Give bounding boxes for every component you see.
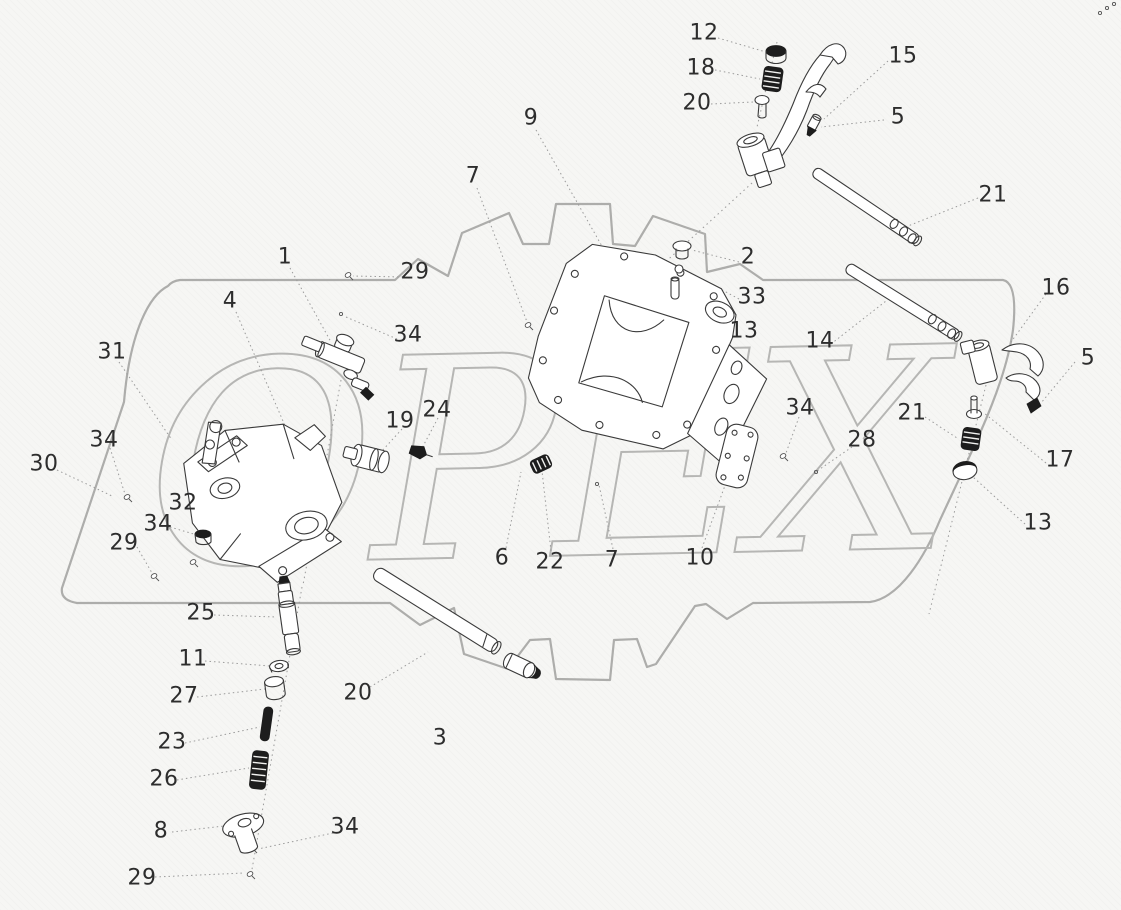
screw-5-right-part (1027, 398, 1041, 413)
nut-11-part (269, 659, 289, 673)
leader-line-27 (197, 689, 265, 697)
screw-5-top-part (804, 113, 823, 138)
tiny-screw-mark (123, 494, 132, 502)
tiny-dot-mark (1105, 6, 1108, 9)
leader-line-30 (57, 470, 112, 496)
leader-line-29 (155, 873, 244, 877)
callout-label-7: 7 (605, 548, 620, 573)
callout-label-16: 16 (1042, 276, 1071, 301)
cap-12-part (766, 46, 786, 57)
callout-label-30: 30 (30, 452, 59, 477)
cap-8-part (220, 809, 271, 858)
spring-18-part (761, 66, 783, 92)
callout-label-10: 10 (686, 546, 715, 571)
callout-label-15: 15 (889, 44, 918, 69)
diagram-canvas: OPEX (0, 0, 1121, 910)
callout-label-22: 22 (536, 550, 565, 575)
callout-label-7: 7 (466, 164, 481, 189)
callout-label-27: 27 (170, 684, 199, 709)
leader-line-12 (718, 38, 766, 52)
callout-label-29: 29 (401, 260, 430, 285)
callout-label-5: 5 (1081, 346, 1096, 371)
leader-line-5 (821, 120, 884, 127)
leader-line-8 (172, 826, 224, 832)
leader-line-18 (715, 70, 760, 79)
callout-label-29: 29 (128, 866, 157, 891)
callout-label-11: 11 (179, 647, 208, 672)
part-drawing-upper-fork-group (735, 44, 845, 190)
leader-line-16 (1011, 294, 1046, 342)
leader-line-34 (110, 448, 125, 494)
tiny-screw-mark (246, 871, 255, 879)
callout-label-23: 23 (158, 730, 187, 755)
leader-line-2 (692, 250, 739, 262)
bolt-17-part (967, 396, 982, 419)
callout-label-34: 34 (394, 323, 423, 348)
leader-line-15 (824, 61, 888, 119)
tiny-screw-mark (344, 272, 353, 280)
callout-label-1: 1 (278, 245, 293, 270)
callout-label-21: 21 (898, 401, 927, 426)
callout-label-24: 24 (423, 398, 452, 423)
fork-16-group (952, 336, 1044, 481)
leader-line-13 (973, 477, 1025, 524)
callout-label-21: 21 (979, 183, 1008, 208)
bushing-27-part (264, 675, 286, 700)
leader-line-23 (185, 727, 260, 743)
callout-label-17: 17 (1046, 448, 1075, 473)
leader-line-34 (258, 833, 333, 849)
callout-label-33: 33 (738, 285, 767, 310)
callout-label-34: 34 (144, 512, 173, 537)
fork-16-jaw (1002, 344, 1043, 376)
callout-label-34: 34 (331, 815, 360, 840)
plug-2-part (673, 241, 691, 259)
tiny-dot-mark (1098, 11, 1101, 14)
spring-21-right-part (961, 427, 982, 451)
leader-line-29 (353, 276, 403, 277)
callout-label-20: 20 (683, 91, 712, 116)
leader-line-26 (177, 768, 249, 780)
fork-15-part (735, 44, 845, 190)
leader-line-21 (903, 198, 978, 228)
callout-label-13: 13 (730, 319, 759, 344)
callout-label-13: 13 (1024, 511, 1053, 536)
callout-label-9: 9 (524, 106, 539, 131)
callout-label-4: 4 (223, 289, 238, 314)
callout-label-18: 18 (687, 56, 716, 81)
tiny-dot-mark (1112, 2, 1115, 5)
callout-label-34: 34 (90, 428, 119, 453)
spring-26-part (249, 750, 269, 789)
rod-21-top-part (811, 166, 924, 248)
leader-line-20 (711, 102, 753, 104)
callout-label-6: 6 (495, 546, 510, 571)
pin-13-part (671, 277, 679, 299)
leader-line-9 (536, 130, 607, 255)
leader-line-20 (370, 652, 428, 687)
callout-label-28: 28 (848, 428, 877, 453)
leader-line-17 (984, 413, 1046, 463)
ball-33-part (675, 265, 683, 273)
callout-label-3: 3 (433, 726, 448, 751)
callout-label-25: 25 (187, 601, 216, 626)
fork-16-jaw (1006, 374, 1040, 400)
callout-label-31: 31 (98, 340, 127, 365)
callout-label-12: 12 (690, 21, 719, 46)
callout-label-29: 29 (110, 531, 139, 556)
callout-label-20: 20 (344, 681, 373, 706)
callout-label-8: 8 (154, 819, 169, 844)
leader-line-5 (1041, 362, 1075, 403)
pin-23-part (260, 706, 274, 741)
callout-label-2: 2 (741, 245, 756, 270)
leader-line-11 (205, 661, 270, 666)
callout-label-5: 5 (891, 105, 906, 130)
callout-label-34: 34 (786, 396, 815, 421)
callout-label-26: 26 (150, 767, 179, 792)
fitting-20-bottom-part (501, 652, 543, 683)
callout-label-32: 32 (169, 491, 198, 516)
callout-label-14: 14 (806, 329, 835, 354)
callout-label-19: 19 (386, 409, 415, 434)
